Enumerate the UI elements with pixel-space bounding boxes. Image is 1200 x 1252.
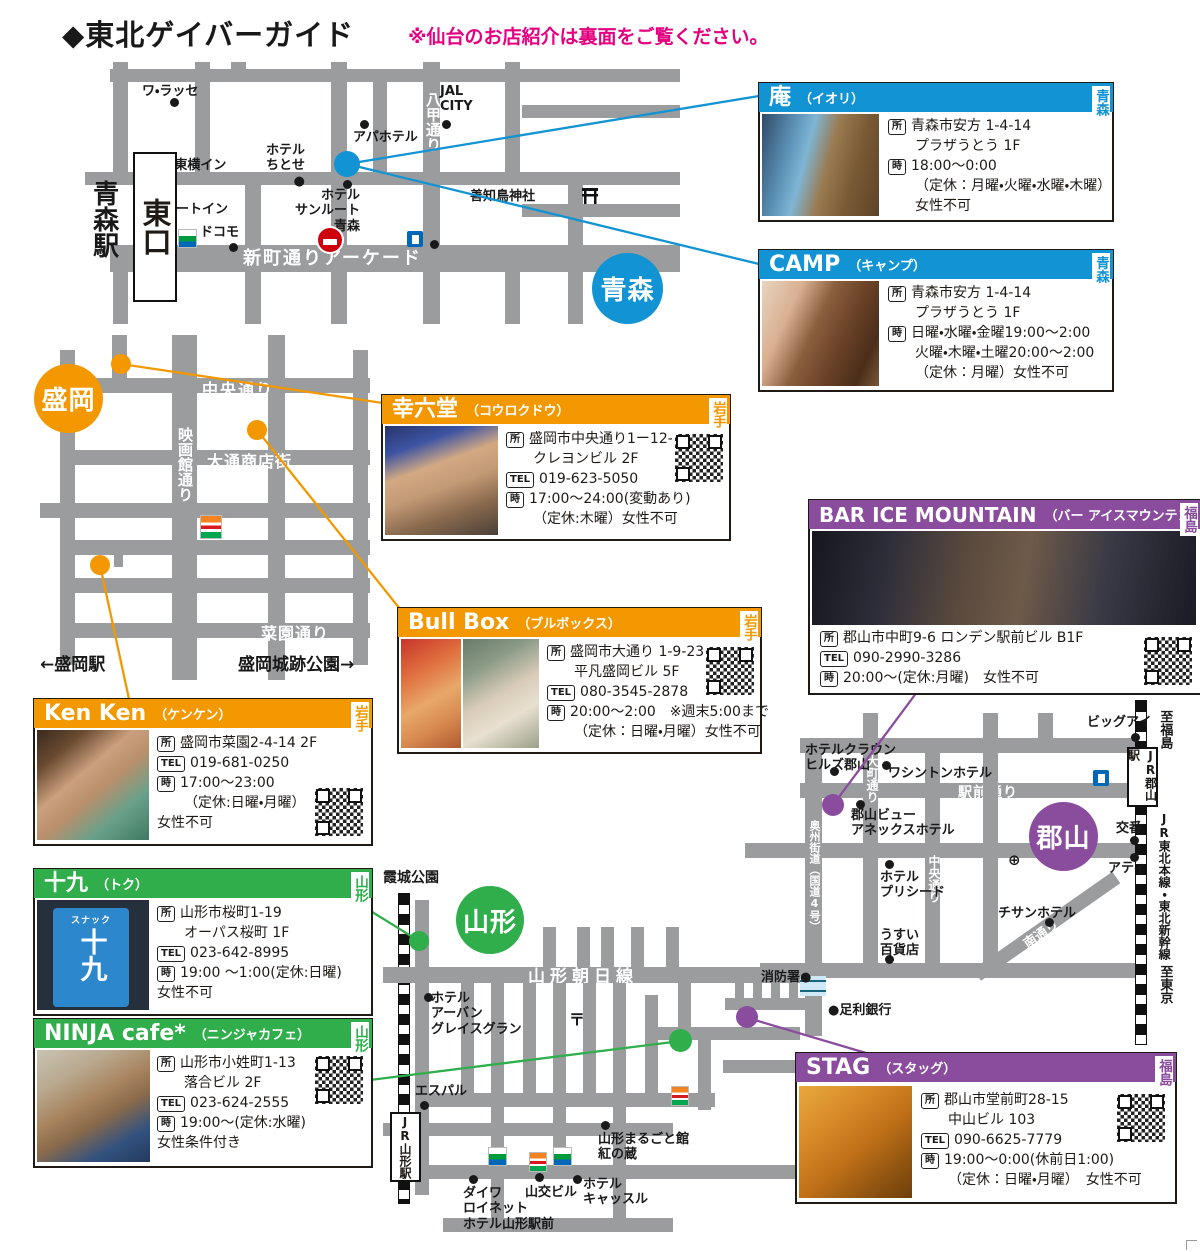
tel-icon: TEL bbox=[506, 472, 534, 488]
road-label-chuo: 中央通り bbox=[202, 382, 274, 398]
road-segment bbox=[771, 983, 780, 1010]
aomori-east-exit-box: 東口 bbox=[133, 152, 177, 302]
qr-code bbox=[675, 434, 723, 482]
store-dot-iori-camp bbox=[334, 151, 360, 177]
card-ninja-region-badge: 山形 bbox=[351, 1022, 369, 1055]
page-title: ◆東北ゲイバーガイド bbox=[62, 12, 354, 54]
page-corner-mark bbox=[1186, 1240, 1197, 1250]
address-line-2: クレヨンビル 2F bbox=[506, 450, 691, 470]
store-dot-stag bbox=[736, 1006, 758, 1028]
to-fukushima-label: 至福島 bbox=[1157, 710, 1172, 749]
time-icon: 時 bbox=[888, 159, 906, 175]
seven-eleven-icon bbox=[529, 1152, 547, 1172]
seven-eleven-icon bbox=[200, 515, 222, 539]
time-icon: 時 bbox=[157, 1116, 175, 1132]
poi-dot bbox=[535, 1173, 544, 1182]
card-icemountain-reading: （バー アイスマウンテン） bbox=[1044, 505, 1200, 524]
address-text: 盛岡市中央通り1ー12-3 bbox=[529, 430, 682, 450]
hours-text: 17:00〜23:00 bbox=[180, 774, 275, 794]
road-label-saien: 菜園通り bbox=[261, 626, 329, 642]
addr-icon: 所 bbox=[888, 119, 906, 135]
time-icon: 時 bbox=[506, 492, 524, 508]
qr-code bbox=[315, 788, 363, 836]
card-iori-reading: （イオリ） bbox=[799, 88, 864, 107]
hours-line: 時19:00〜0:00(休前日1:00) bbox=[921, 1151, 1142, 1171]
address-line-2: プラザうとう 1F bbox=[888, 304, 1094, 324]
addr-icon: 所 bbox=[157, 906, 175, 922]
time-icon: 時 bbox=[157, 776, 175, 792]
poi-dot bbox=[1131, 733, 1140, 742]
hours-line: 時18:00〜0:00 bbox=[888, 157, 1111, 177]
hours-text: 日曜・水曜・金曜19:00〜2:00 bbox=[911, 324, 1090, 344]
poi-dot bbox=[229, 243, 238, 252]
road-segment bbox=[631, 927, 644, 967]
card-stag-header: STAG （スタッグ） bbox=[796, 1053, 1176, 1082]
card-kenken-region-badge: 岩手 bbox=[351, 702, 369, 735]
card-camp-reading: （キャンプ） bbox=[848, 255, 926, 274]
address-line: 所青森市安方 1-4-14 bbox=[888, 117, 1111, 137]
road-segment bbox=[60, 540, 370, 555]
addr-icon: 所 bbox=[157, 1056, 175, 1072]
card-kourokudo-reading: （コウロクドウ） bbox=[466, 400, 569, 419]
road-segment bbox=[753, 983, 762, 1010]
addr-icon: 所 bbox=[157, 736, 175, 752]
hours-text: 19:00〜0:00(休前日1:00) bbox=[944, 1151, 1114, 1171]
card-bullbox-photo-left bbox=[401, 639, 461, 748]
tel-line: TEL090-6625-7779 bbox=[921, 1131, 1142, 1151]
seven-eleven-icon bbox=[671, 1086, 689, 1106]
poi-usui-depart: うすい 百貨店 bbox=[880, 928, 919, 959]
card-icemountain-region-badge: 福島 bbox=[1180, 503, 1198, 536]
yamagata-station-label: JR山形駅 bbox=[397, 1115, 414, 1179]
poi-dot bbox=[170, 98, 179, 107]
road-label-oshu: 奥州街道（国道4号） bbox=[809, 820, 820, 932]
store-dot-toku bbox=[409, 931, 429, 951]
poi-espal: エスパル bbox=[415, 1084, 467, 1099]
tel-text: 080-3545-2878 bbox=[580, 683, 688, 703]
koriyama-station-label: JR郡山駅 bbox=[1126, 749, 1160, 805]
address-line-2: プラザうとう 1F bbox=[888, 137, 1111, 157]
card-kourokudo-header: 幸六堂 （コウロクドウ） bbox=[382, 395, 730, 424]
lawson-icon bbox=[407, 231, 423, 247]
koriyama-station-box: JR郡山駅 bbox=[1127, 747, 1158, 807]
card-stag-region-badge: 福島 bbox=[1155, 1056, 1173, 1089]
hours-line-3: （定休：月曜）女性不可 bbox=[888, 364, 1094, 384]
hours-line-2: 女性条件付き bbox=[157, 1134, 306, 1154]
hours-line: 時日曜・水曜・金曜19:00〜2:00 bbox=[888, 324, 1094, 344]
qr-code bbox=[315, 1056, 363, 1104]
address-line: 所青森市安方 1-4-14 bbox=[888, 284, 1094, 304]
poi-hotel-castle: ホテル キャッスル bbox=[583, 1177, 648, 1208]
address-line: 所盛岡市中央通り1ー12-3 bbox=[506, 430, 691, 450]
region-circle-yamagata: 山形 bbox=[456, 886, 524, 954]
poi-yamako-building: 山交ビル bbox=[525, 1185, 577, 1200]
card-toku-photo: スナック 十九 bbox=[37, 900, 149, 1010]
road-label-hakko: 八甲通り bbox=[425, 92, 440, 152]
tel-text: 019-623-5050 bbox=[539, 470, 638, 490]
poi-koban: 交番 bbox=[1116, 821, 1142, 836]
poi-jal-city: JAL CITY bbox=[440, 84, 473, 115]
tel-text: 090-6625-7779 bbox=[954, 1131, 1062, 1151]
qr-code bbox=[1117, 1094, 1165, 1142]
card-kourokudo: 幸六堂 （コウロクドウ） 岩手 所盛岡市中央通り1ー12-3 クレヨンビル 2F… bbox=[381, 394, 731, 541]
poi-dot bbox=[885, 955, 894, 964]
hours-text: 19:00〜(定休:水曜) bbox=[180, 1114, 306, 1134]
poi-hotel-urban: ホテル アーバン グレイスグラン bbox=[431, 991, 522, 1037]
hours-text: 20:00〜(定休:月曜) 女性不可 bbox=[843, 669, 1039, 689]
address-line: 所山形市桜町1-19 bbox=[157, 904, 342, 924]
card-bullbox: Bull Box （ブルボックス） 岩手 所盛岡市大通り 1-9-23 平凡盛岡… bbox=[397, 607, 762, 754]
road-segment bbox=[522, 105, 680, 118]
card-stag: STAG （スタッグ） 福島 所郡山市堂前町28-15 中山ビル 103 TEL… bbox=[795, 1052, 1177, 1204]
card-iori: 庵 （イオリ） 青森 所青森市安方 1-4-14 プラザうとう 1F 時18:0… bbox=[758, 82, 1114, 222]
hours-line-3: 女性不可 bbox=[888, 197, 1111, 217]
familymart-icon bbox=[178, 229, 197, 248]
road-segment bbox=[543, 927, 556, 967]
hours-line-2: 女性不可 bbox=[157, 984, 342, 1004]
tel-line: TEL019-623-5050 bbox=[506, 470, 691, 490]
road-segment bbox=[983, 713, 998, 963]
store-dot-kourokudo bbox=[111, 354, 131, 374]
card-kourokudo-photo bbox=[385, 426, 498, 535]
tel-text: 019-681-0250 bbox=[190, 754, 289, 774]
poi-washington-hotel: ワシントンホテル bbox=[888, 766, 992, 781]
address-line: 所郡山市堂前町28-15 bbox=[921, 1091, 1142, 1111]
road-segment bbox=[505, 62, 520, 179]
tel-icon: TEL bbox=[157, 1096, 185, 1112]
card-kourokudo-region-badge: 岩手 bbox=[709, 398, 727, 431]
poi-dot bbox=[885, 860, 894, 869]
road-segment bbox=[113, 267, 128, 324]
aomori-station-label: 青森駅 bbox=[88, 180, 119, 258]
tel-line: TEL019-681-0250 bbox=[157, 754, 317, 774]
address-text: 盛岡市大通り 1-9-23 bbox=[570, 643, 704, 663]
card-kenken: Ken Ken （ケンケン） 岩手 所盛岡市菜園2-4-14 2F TEL019… bbox=[33, 698, 373, 846]
map-koriyama: 駅前通り 奥州街道（国道4号） 大町通り 中央通り 南通り JR郡山駅 至福島 … bbox=[725, 700, 1200, 1050]
tel-icon: TEL bbox=[547, 685, 575, 701]
card-stag-reading: （スタッグ） bbox=[878, 1058, 956, 1077]
card-iori-photo bbox=[762, 114, 879, 216]
card-camp-header: CAMP （キャンプ） bbox=[759, 250, 1113, 279]
hospital-icon: ⊕ bbox=[1008, 852, 1021, 870]
card-icemountain-photo bbox=[812, 531, 1196, 625]
store-dot-icemountain bbox=[822, 794, 844, 816]
card-icemountain-header: BAR ICE MOUNTAIN （バー アイスマウンテン） bbox=[809, 500, 1200, 529]
tel-icon: TEL bbox=[157, 756, 185, 772]
road-segment bbox=[645, 995, 658, 1100]
card-bullbox-reading: （ブルボックス） bbox=[517, 613, 621, 632]
card-bullbox-name: Bull Box bbox=[408, 612, 509, 634]
store-dot-ninja bbox=[669, 1029, 692, 1052]
card-ninja-photo bbox=[37, 1050, 150, 1162]
road-segment bbox=[1038, 713, 1053, 753]
card-camp-photo bbox=[762, 281, 879, 386]
jr-line-label: JR東北本線・東北新幹線 bbox=[1157, 812, 1171, 960]
road-segment bbox=[577, 927, 590, 967]
hours-line: 時20:00〜(定休:月曜) 女性不可 bbox=[820, 669, 1083, 689]
address-text: 山形市小姓町1-13 bbox=[180, 1054, 296, 1074]
poi-dot bbox=[420, 1101, 429, 1110]
tel-line: TEL090-2990-3286 bbox=[820, 649, 1083, 669]
poi-hotel-sunroute: ホテル サンルート 青森 bbox=[270, 188, 360, 234]
address-text: 郡山市中町9-6 ロンデン駅前ビル B1F bbox=[843, 629, 1083, 649]
address-text: 盛岡市菜園2-4-14 2F bbox=[180, 734, 317, 754]
gusto-icon bbox=[318, 228, 342, 252]
card-ninja: NINJA cafe* （ニンジャカフェ） 山形 所山形市小姓町1-13 落合ビ… bbox=[33, 1018, 373, 1168]
yamagata-station-box: JR山形駅 bbox=[390, 1112, 421, 1182]
road-segment bbox=[601, 927, 614, 967]
time-icon: 時 bbox=[547, 705, 565, 721]
road-label-eigakan: 映画館通り bbox=[177, 427, 192, 502]
addr-icon: 所 bbox=[820, 631, 838, 647]
address-line-2: 落合ビル 2F bbox=[157, 1074, 306, 1094]
familymart-icon bbox=[553, 1147, 572, 1166]
qr-code bbox=[1144, 637, 1192, 685]
card-ninja-reading: （ニンジャカフェ） bbox=[194, 1024, 310, 1043]
card-icemountain-name: BAR ICE MOUNTAIN bbox=[819, 505, 1036, 525]
card-kenken-reading: （ケンケン） bbox=[154, 704, 231, 723]
poi-fire-station: 消防署● bbox=[761, 970, 811, 985]
poi-crown-hills: ホテルクラウン ヒルズ郡山 bbox=[805, 743, 896, 774]
tel-icon: TEL bbox=[157, 946, 185, 962]
to-tokyo-label: 至東京 bbox=[1157, 965, 1172, 1004]
card-camp-region-badge: 青森 bbox=[1092, 253, 1110, 286]
address-line-2: オーパス桜町 1F bbox=[157, 924, 342, 944]
post-office-icon: 〒 bbox=[569, 1011, 585, 1030]
road-segment bbox=[789, 983, 798, 1010]
poi-dot bbox=[830, 767, 839, 776]
card-kourokudo-name: 幸六堂 bbox=[392, 399, 458, 421]
card-bullbox-header: Bull Box （ブルボックス） bbox=[398, 608, 761, 637]
road-segment bbox=[583, 983, 596, 1100]
hours-line: 時20:00〜2:00 ※週末5:00まで bbox=[547, 703, 769, 723]
poi-docomo: ドコモ bbox=[200, 225, 239, 240]
tel-icon: TEL bbox=[820, 651, 848, 667]
road-segment bbox=[60, 578, 370, 593]
poi-view-annex: 郡山ビュー アネックスホテル bbox=[851, 808, 955, 839]
card-iori-header: 庵 （イオリ） bbox=[759, 83, 1113, 112]
region-circle-koriyama: 郡山 bbox=[1029, 802, 1098, 871]
torii-icon bbox=[582, 188, 598, 204]
tel-icon: TEL bbox=[921, 1133, 949, 1149]
card-toku: 十九 （トク） 山形 スナック 十九 所山形市桜町1-19 オーパス桜町 1F … bbox=[33, 868, 373, 1016]
card-icemountain: BAR ICE MOUNTAIN （バー アイスマウンテン） 福島 所郡山市中町… bbox=[808, 499, 1200, 695]
address-line: 所郡山市中町9-6 ロンデン駅前ビル B1F bbox=[820, 629, 1083, 649]
tohoku-gay-bar-guide-poster: ◆東北ゲイバーガイド ※仙台のお店紹介は裏面をご覧ください。 新町通りアーケード… bbox=[0, 0, 1200, 1252]
card-ninja-header: NINJA cafe* （ニンジャカフェ） bbox=[34, 1019, 372, 1048]
poi-dot bbox=[442, 120, 451, 129]
toku-sign: スナック 十九 bbox=[53, 908, 129, 1007]
hours-line-2: （定休：日曜・月曜）女性不可 bbox=[547, 723, 769, 743]
card-iori-name: 庵 bbox=[769, 87, 791, 109]
address-text: 山形市桜町1-19 bbox=[180, 904, 282, 924]
road-segment bbox=[522, 204, 680, 217]
map-aomori: 新町通りアーケード 八甲通り 青森駅 東口 ワ・ラッセ ●東横イン ルートイン … bbox=[85, 62, 680, 324]
card-kenken-header: Ken Ken （ケンケン） bbox=[34, 699, 372, 728]
card-stag-name: STAG bbox=[806, 1057, 870, 1079]
road-segment bbox=[114, 547, 123, 567]
road-segment bbox=[723, 1060, 800, 1073]
poi-utou-shrine: 善知鳥神社 bbox=[470, 189, 535, 204]
card-ninja-name: NINJA cafe* bbox=[44, 1023, 186, 1045]
poi-apa-hotel: アパホテル bbox=[353, 130, 418, 145]
aomori-east-exit-label: 東口 bbox=[134, 198, 176, 256]
card-camp-name: CAMP bbox=[769, 254, 840, 276]
card-toku-reading: （トク） bbox=[96, 874, 148, 893]
road-segment bbox=[523, 983, 536, 1100]
card-toku-region-badge: 山形 bbox=[351, 872, 369, 905]
poi-hotel-precede: ホテル プリシード bbox=[880, 870, 945, 901]
card-kenken-photo bbox=[37, 730, 149, 840]
poi-ashikaga-bank: ●足利銀行 bbox=[828, 1003, 891, 1018]
card-bullbox-region-badge: 岩手 bbox=[740, 611, 758, 644]
address-text: 青森市安方 1-4-14 bbox=[911, 284, 1031, 304]
poi-dot bbox=[573, 1175, 582, 1184]
poi-warasse: ワ・ラッセ bbox=[142, 84, 198, 99]
address-line: 所山形市小姓町1-13 bbox=[157, 1054, 306, 1074]
time-icon: 時 bbox=[888, 326, 906, 342]
tel-text: 090-2990-3286 bbox=[853, 649, 961, 669]
hours-line-3: 女性不可 bbox=[157, 814, 317, 834]
hours-line: 時19:00 〜1:00(定休:日曜) bbox=[157, 964, 342, 984]
addr-icon: 所 bbox=[506, 432, 524, 448]
card-stag-photo bbox=[799, 1086, 912, 1198]
toku-sign-top-text: スナック bbox=[53, 913, 129, 926]
hours-line-2: （定休：日曜・月曜） 女性不可 bbox=[921, 1171, 1142, 1191]
familymart-icon bbox=[488, 1147, 507, 1166]
poi-ati: アティ bbox=[1108, 861, 1146, 876]
address-line-2: 中山ビル 103 bbox=[921, 1111, 1142, 1131]
poi-chisan-hotel: チサンホテル bbox=[998, 906, 1076, 921]
hours-line-2: （定休:日曜・月曜） bbox=[157, 794, 317, 814]
card-kenken-name: Ken Ken bbox=[44, 703, 146, 725]
address-text: 青森市安方 1-4-14 bbox=[911, 117, 1031, 137]
hours-line-2: 火曜・木曜・土曜20:00〜2:00 bbox=[888, 344, 1094, 364]
page-note: ※仙台のお店紹介は裏面をご覧ください。 bbox=[408, 22, 768, 49]
time-icon: 時 bbox=[921, 1153, 939, 1169]
card-bullbox-photo-right bbox=[463, 639, 539, 748]
poi-dot bbox=[430, 240, 439, 249]
morioka-station-note: ←盛岡駅 bbox=[40, 655, 105, 675]
toku-sign-main-text: 十九 bbox=[78, 928, 105, 982]
poi-dot bbox=[1045, 918, 1054, 927]
card-toku-header: 十九 （トク） bbox=[34, 869, 372, 898]
store-dot-kenken bbox=[90, 555, 110, 575]
address-text: 郡山市堂前町28-15 bbox=[944, 1091, 1069, 1111]
card-iori-region-badge: 青森 bbox=[1092, 86, 1110, 119]
hours-text: 17:00〜24:00(変動あり) bbox=[529, 490, 691, 510]
poi-marugoto-kan: 山形まるごと館 紅の蔵 bbox=[598, 1132, 689, 1163]
road-label-odori: 大通商店街 bbox=[207, 454, 292, 470]
addr-icon: 所 bbox=[547, 645, 565, 661]
poi-big-i: ビッグアイ bbox=[1087, 715, 1151, 730]
hours-line: 時17:00〜23:00 bbox=[157, 774, 317, 794]
store-dot-bullbox bbox=[247, 420, 267, 440]
card-toku-name: 十九 bbox=[44, 873, 88, 895]
poi-dot bbox=[469, 1175, 478, 1184]
poi-dot bbox=[360, 120, 369, 129]
hours-text: 18:00〜0:00 bbox=[911, 157, 997, 177]
addr-icon: 所 bbox=[921, 1093, 939, 1109]
hours-line: 時19:00〜(定休:水曜) bbox=[157, 1114, 306, 1134]
poi-dot bbox=[601, 1121, 610, 1130]
time-icon: 時 bbox=[157, 966, 175, 982]
hours-line: 時17:00〜24:00(変動あり) bbox=[506, 490, 691, 510]
tel-line: TEL023-642-8995 bbox=[157, 944, 342, 964]
qr-code bbox=[706, 647, 754, 695]
road-segment bbox=[666, 927, 679, 967]
lawson-icon bbox=[1093, 770, 1109, 786]
road-label-shinmachi: 新町通りアーケード bbox=[243, 250, 422, 268]
hours-text: 19:00 〜1:00(定休:日曜) bbox=[180, 964, 342, 984]
addr-icon: 所 bbox=[888, 286, 906, 302]
poi-hotel-chitose: ホテル ちとせ● bbox=[263, 143, 305, 189]
hours-text: 20:00〜2:00 ※週末5:00まで bbox=[570, 703, 769, 723]
yamagata-park-label: 霞城公園 bbox=[383, 870, 439, 887]
tel-text: 023-642-8995 bbox=[190, 944, 289, 964]
hours-line-2: （定休：月曜・火曜・水曜・木曜） bbox=[888, 177, 1111, 197]
railway-track bbox=[398, 893, 410, 1114]
road-segment bbox=[231, 62, 246, 82]
road-segment bbox=[373, 82, 387, 172]
region-circle-aomori: 青森 bbox=[592, 253, 663, 324]
poi-dot bbox=[1130, 836, 1139, 845]
address-line: 所盛岡市菜園2-4-14 2F bbox=[157, 734, 317, 754]
region-circle-morioka: 盛岡 bbox=[34, 364, 103, 433]
map-morioka: 中央通り 映画館通り 大通商店街 菜園通り ←盛岡駅 盛岡城跡公園→ 盛岡 bbox=[40, 335, 370, 680]
time-icon: 時 bbox=[820, 671, 838, 687]
road-segment bbox=[113, 62, 128, 179]
card-camp: CAMP （キャンプ） 青森 所青森市安方 1-4-14 プラザうとう 1F 時… bbox=[758, 249, 1114, 392]
road-segment bbox=[505, 267, 520, 324]
tel-line: TEL023-624-2555 bbox=[157, 1094, 306, 1114]
hours-line-2: （定休:木曜）女性不可 bbox=[506, 510, 691, 530]
tel-text: 023-624-2555 bbox=[190, 1094, 289, 1114]
morioka-park-note: 盛岡城跡公園→ bbox=[238, 655, 354, 675]
